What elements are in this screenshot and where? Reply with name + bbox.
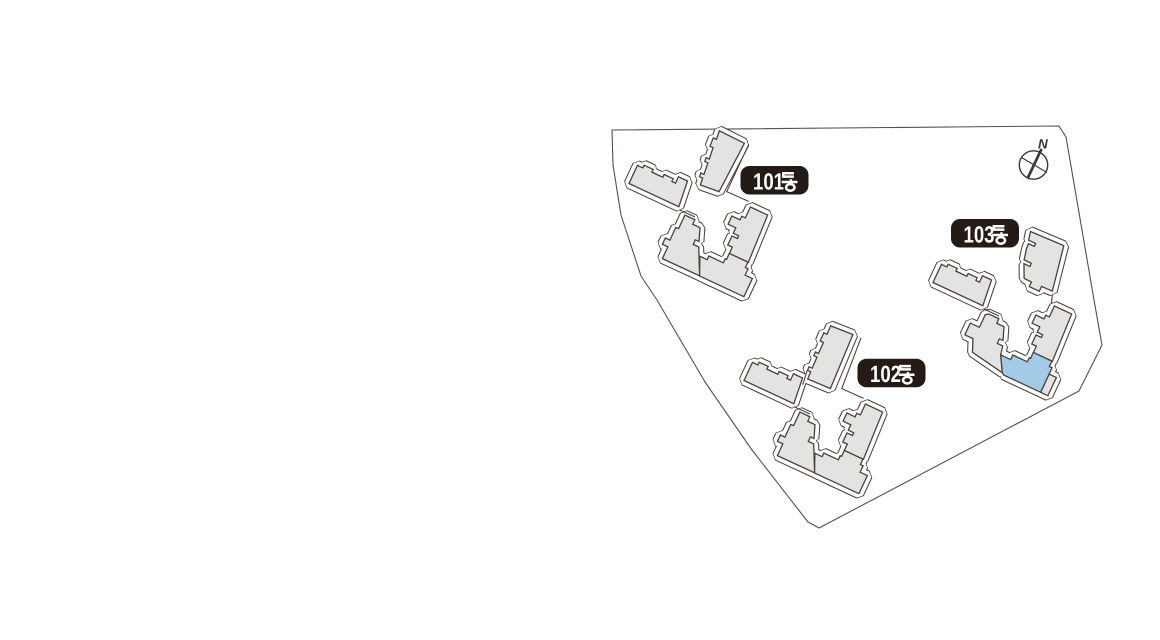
svg-text:102: 102 bbox=[870, 361, 901, 387]
svg-text:103: 103 bbox=[964, 221, 995, 247]
svg-text:101: 101 bbox=[753, 168, 784, 194]
svg-text:N: N bbox=[1038, 137, 1048, 152]
